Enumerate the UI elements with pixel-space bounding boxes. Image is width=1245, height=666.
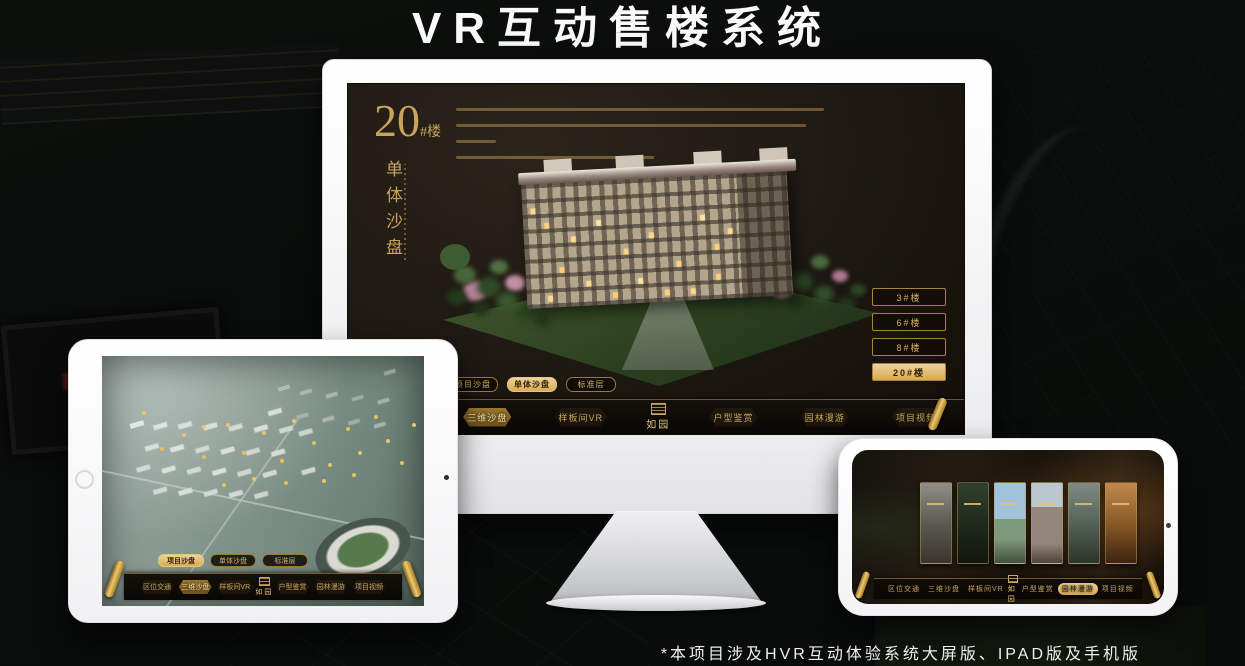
camera-dot-icon (1166, 523, 1171, 528)
tablet-sub-tabs: 项目沙盘 单体沙盘 标准层 (158, 554, 308, 567)
monitor-base (546, 595, 766, 611)
description-line (456, 140, 496, 143)
ruyuan-logo: 如园 (255, 577, 273, 597)
aerial-buildings-far (278, 384, 291, 391)
nav-floorplan[interactable]: 户型鉴赏 (274, 580, 312, 594)
nav-3d-sandtable[interactable]: 三维沙盘 (924, 583, 964, 595)
description-line (456, 124, 806, 127)
nav-showroom-vr[interactable]: 样板间VR (214, 580, 255, 594)
nav-location-traffic[interactable]: 区位交通 (884, 583, 924, 595)
ruyuan-logo: 如园 (646, 403, 670, 431)
nav-floorplan[interactable]: 户型鉴赏 (1018, 583, 1058, 595)
floor-button-20[interactable]: 20#楼 (872, 363, 946, 381)
scene-card[interactable] (1068, 482, 1100, 564)
tablet-device: 项目沙盘 单体沙盘 标准层 区位交通 三维沙盘 样板间VR 如园 户型鉴赏 园林… (68, 339, 458, 623)
building-number: 20 (374, 95, 420, 146)
logo-seal-icon (1008, 575, 1018, 583)
scroll-handle-icon[interactable] (854, 571, 870, 600)
logo-name: 如园 (255, 587, 273, 597)
home-button[interactable] (75, 470, 94, 489)
building-number-suffix: #楼 (420, 125, 441, 140)
floor-button-6[interactable]: 6#楼 (872, 313, 946, 331)
tab-single-sandtable[interactable]: 单体沙盘 (507, 377, 557, 392)
footnote: *本项目涉及HVR互动体验系统大屏版、IPAD版及手机版 (661, 640, 1141, 664)
nav-garden-roam[interactable]: 园林漫游 (1058, 583, 1098, 595)
floor-button-3[interactable]: 3#楼 (872, 288, 946, 306)
tablet-screen: 项目沙盘 单体沙盘 标准层 区位交通 三维沙盘 样板间VR 如园 户型鉴赏 园林… (102, 356, 424, 606)
scene-gallery (920, 482, 1137, 564)
monitor-stand (551, 511, 761, 601)
logo-seal-icon (651, 403, 666, 415)
building-number-badges[interactable] (142, 411, 146, 415)
building-model-3d[interactable] (434, 148, 884, 392)
model-building-facade (521, 167, 793, 309)
phone-screen: 区位交通 三维沙盘 样板间VR 如园 户型鉴赏 园林漫游 项目视频 (852, 450, 1164, 604)
tab-project-sandtable[interactable]: 项目沙盘 (158, 554, 204, 567)
tablet-bottom-nav: 区位交通 三维沙盘 样板间VR 如园 户型鉴赏 园林漫游 项目视频 (124, 573, 402, 600)
tab-standard-floor[interactable]: 标准层 (566, 377, 616, 392)
logo-seal-icon (259, 577, 270, 586)
building-heading: 20#楼 (374, 98, 441, 144)
view-sub-tabs: 项目沙盘 单体沙盘 标准层 (448, 377, 616, 392)
camera-dot-icon (444, 475, 449, 480)
model-lit-windows (530, 208, 535, 214)
phone-device: 区位交通 三维沙盘 样板间VR 如园 户型鉴赏 园林漫游 项目视频 (838, 438, 1178, 616)
aerial-buildings (130, 420, 145, 429)
nav-project-video[interactable]: 项目视频 (350, 580, 388, 594)
scroll-handle-icon[interactable] (1145, 571, 1161, 600)
description-line (456, 108, 824, 111)
subtitle-english-caption (404, 164, 406, 260)
scroll-handle-icon[interactable] (401, 560, 422, 599)
model-trees-left (440, 244, 470, 270)
scene-card[interactable] (1105, 482, 1137, 564)
floor-button-8[interactable]: 8#楼 (872, 338, 946, 356)
page-title: VR互动售楼系统 (0, 0, 1245, 58)
nav-showroom-vr[interactable]: 样板间VR (551, 408, 612, 427)
scene-card[interactable] (920, 482, 952, 564)
nav-project-video[interactable]: 项目视频 (1098, 583, 1138, 595)
building-subtitle: 单体沙盘 (380, 160, 405, 264)
phone-bottom-nav: 区位交通 三维沙盘 样板间VR 如园 户型鉴赏 园林漫游 项目视频 (874, 578, 1142, 599)
logo-name: 如园 (1008, 584, 1018, 604)
scene-card[interactable] (994, 482, 1026, 564)
nav-showroom-vr[interactable]: 样板间VR (964, 583, 1008, 595)
scroll-handle-icon[interactable] (104, 560, 125, 599)
nav-floorplan[interactable]: 户型鉴赏 (705, 408, 761, 427)
nav-garden-roam[interactable]: 园林漫游 (797, 408, 853, 427)
scene-card[interactable] (1031, 482, 1063, 564)
tab-single-sandtable[interactable]: 单体沙盘 (210, 554, 256, 567)
stage: VR互动售楼系统 20#楼 单体沙盘 (0, 0, 1245, 666)
nav-garden-roam[interactable]: 园林漫游 (312, 580, 350, 594)
logo-name: 如园 (646, 416, 670, 431)
scene-card[interactable] (957, 482, 989, 564)
nav-location-traffic[interactable]: 区位交通 (138, 580, 176, 594)
ruyuan-logo: 如园 (1008, 575, 1018, 604)
nav-3d-sandtable[interactable]: 三维沙盘 (459, 408, 515, 427)
floor-button-group: 3#楼 6#楼 8#楼 20#楼 (872, 288, 946, 381)
nav-3d-sandtable[interactable]: 三维沙盘 (176, 580, 214, 594)
tab-standard-floor[interactable]: 标准层 (262, 554, 308, 567)
